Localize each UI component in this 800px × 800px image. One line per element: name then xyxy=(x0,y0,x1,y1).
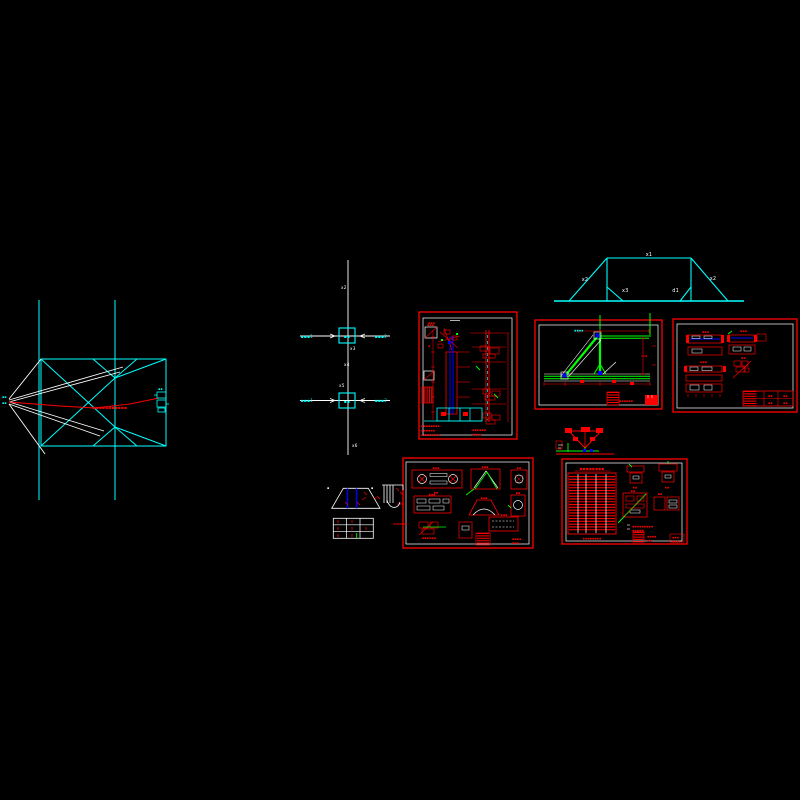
annotation-text: ▪ xyxy=(645,354,647,358)
annotation-text: ▪▪ xyxy=(783,401,788,405)
schedule-title: ▪▪▪▪▪▪▪▪ xyxy=(579,466,604,471)
annotation-text: ▪▪ xyxy=(658,492,663,496)
node1-inner-label: ▪▪ xyxy=(344,334,350,339)
annotation-text: ▪▪ xyxy=(517,466,522,470)
bracing-panel-outline xyxy=(41,359,166,446)
node2-left-label: ▪▪▪1 xyxy=(301,398,313,403)
column-axis-schematic: ▪▪ ▪▪ ▪▪▪1 ▪▪▪2 ▪▪▪1 ▪▪▪2 x2 x3 x4 x5 x6 xyxy=(300,260,390,455)
annotation-text: ▪▪▪ xyxy=(481,465,488,469)
annotation-text: ▪▪ xyxy=(665,486,670,490)
annotation-text: ▪▪▪ xyxy=(480,496,487,500)
annotation-text: ▪▪▪ xyxy=(702,330,709,334)
portal-innerright-label: d1 xyxy=(672,288,679,294)
annotation-text: ▪▪▪▪▪▪ xyxy=(422,536,436,540)
bottom-left-joint xyxy=(419,522,438,535)
detail-sheet-column: ▪▪▪ ▪▪▪ ▪▪▪▪▪▪▪▪ ▪▪▪▪▪▪ ▪▪▪▪▪▪▪▪ ▪▪▪▪▪▪ … xyxy=(419,312,517,439)
node2-right-label: ▪▪▪2 xyxy=(375,398,387,403)
annotation-text: ▪▪▪ xyxy=(427,323,434,327)
detail-sheet-schedule: ▪▪▪▪▪▪▪▪ ▪▪ ▪▪ ▪▪ ▪▪ ▪▪▪▪▪▪▪▪▪ ▪▪▪▪▪ ▪▪▪… xyxy=(562,459,687,544)
annotation-text: ▪▪▪▪▪▪ xyxy=(619,399,633,403)
pedestal-detail: ▪ ▪ xyxy=(327,485,407,538)
annotation-text: ▪▪▪ xyxy=(432,466,439,470)
mid-joint-cluster xyxy=(733,361,751,378)
connector-note: ▪▪ xyxy=(158,387,163,391)
section-mark-left: ▪ xyxy=(327,486,329,490)
apex-note: ▪▪ xyxy=(2,395,7,399)
mini-table xyxy=(333,518,373,538)
right-column-joints xyxy=(480,346,500,424)
annotation-text: ▪▪▪▪▪ xyxy=(632,529,644,533)
annotation-text: ▪▪▪ xyxy=(500,513,507,517)
annotation-text: ▪▪ xyxy=(631,489,636,493)
connector-block xyxy=(154,392,169,412)
node1-right-label: ▪▪▪2 xyxy=(375,334,387,339)
truss-diagonal xyxy=(565,337,597,376)
node2-inner-label: ▪▪ xyxy=(344,399,350,404)
annotation-text: ▪▪ xyxy=(647,539,652,543)
axis-mark: x6 xyxy=(352,443,358,448)
annotation-text: ▪▪ xyxy=(768,394,773,398)
annotation-text: ▪▪▪ xyxy=(700,360,707,364)
annotation-text: ▪▪▪ xyxy=(740,329,747,333)
annotation-text: ▪▪▪ xyxy=(512,541,519,545)
annotation-text: ▪▪ xyxy=(783,394,788,398)
axis-mark: x3 xyxy=(350,346,356,351)
cad-viewport: ▪▪▪▪▪▪▪▪▪▪▪ ▪▪ ▪▪ ▪▪ ▪▪ ▪▪ ▪▪▪1 ▪▪▪2 ▪▪▪… xyxy=(0,0,800,800)
annotation-text: ▪▪▪▪▪▪▪▪ xyxy=(421,433,440,437)
portal-left-label: x2 xyxy=(582,277,589,283)
annotation-text: ▪▪▪▪▪▪ xyxy=(472,428,486,432)
annotation-text: ▪▪▪ xyxy=(672,540,679,544)
axis-mark: x5 xyxy=(339,383,345,388)
annotation-text: ▪▪▪▪▪▪▪▪▪▪▪ xyxy=(93,405,128,410)
annotation-text: ▪▪▪▪▪▪ xyxy=(421,429,435,433)
axis-mark: x4 xyxy=(344,362,350,367)
node1-left-label: ▪▪▪1 xyxy=(301,334,313,339)
portal-innerleft-label: x3 xyxy=(622,288,629,294)
apex-note: ▪▪ xyxy=(2,401,7,405)
section-mark-right: ▪ xyxy=(371,486,373,490)
bracing-elevation: ▪▪▪▪▪▪▪▪▪▪▪ ▪▪ ▪▪ ▪▪ xyxy=(2,300,169,500)
cad-canvas: ▪▪▪▪▪▪▪▪▪▪▪ ▪▪ ▪▪ ▪▪ ▪▪ ▪▪ ▪▪▪1 ▪▪▪2 ▪▪▪… xyxy=(0,0,800,800)
annotation-text: ▪▪ xyxy=(741,356,746,360)
column-elevation xyxy=(446,352,457,414)
pedestal-marks xyxy=(345,488,403,505)
joint-detail-mini xyxy=(556,427,614,454)
detail-sheet-beams: ▪▪▪ ▪▪▪ ▪▪ ▪▪▪ ▪▪ ▪▪ ▪▪ ▪▪ xyxy=(673,319,797,412)
annotation-text: ▪ xyxy=(428,344,430,348)
dimension-arrows xyxy=(330,334,365,403)
portal-frame-diagram: x1 x2 x2 x3 d1 xyxy=(554,252,744,301)
portal-top-label: x1 xyxy=(646,252,653,258)
annotation-text: ▪▪▪▪ xyxy=(574,329,583,333)
detail-sheet-truss: ▪▪▪▪ ▪▪▪▪▪▪ ▪ xyxy=(535,313,662,409)
annotation-text: ▪▪▪▪ xyxy=(472,433,481,437)
sheet-border xyxy=(673,319,797,412)
annotation-text: ▪▪▪▪▪▪▪▪ xyxy=(583,537,602,541)
annotation-text: ▪▪▪▪▪▪▪▪ xyxy=(421,424,440,428)
axis-mark: x2 xyxy=(341,285,347,290)
sheet-inner-border xyxy=(423,318,512,435)
annotation-text: ▪▪ xyxy=(768,401,773,405)
annotation-text: ▪▪▪ xyxy=(428,493,435,497)
detail-sheet-gussets: ▪▪▪ ▪▪ ▪▪▪ ▪▪ ▪▪▪ ▪▪▪ ▪▪ ▪▪▪▪▪▪ ▪▪▪ ▪▪▪▪… xyxy=(397,458,533,548)
portal-right-label: x2 xyxy=(710,276,717,282)
annotation-text: ▪▪ xyxy=(516,491,521,495)
